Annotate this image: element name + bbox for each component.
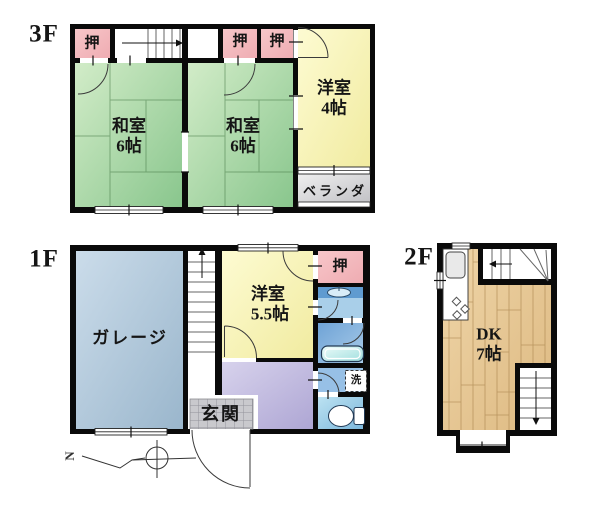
closet2-3f-label: 押 (232, 35, 247, 50)
floorplan-1f (70, 243, 370, 489)
genkan-label: 玄関 (201, 405, 241, 423)
floorplan-page: 3F 押 押 押 和室 6帖 和室 6帖 洋室 4帖 ベランダ 1F ガレージ … (0, 0, 600, 510)
compass-north-icon (82, 440, 196, 478)
understair-area (188, 362, 215, 395)
hall-3f (188, 29, 218, 58)
closet1-3f-label: 押 (84, 37, 99, 52)
floor-label-2f: 2F (404, 245, 434, 270)
floorplan-drawing (0, 0, 600, 510)
washitsu-left-size: 6帖 (116, 138, 142, 155)
yoshitsu-3f-size: 4帖 (321, 100, 347, 117)
closet3-3f-label: 押 (269, 35, 284, 50)
garage-label: ガレージ (92, 330, 168, 347)
dk-name: DK (476, 326, 502, 343)
closet-1f-label: 押 (332, 260, 347, 275)
yoshitsu-1f-name: 洋室 (251, 286, 285, 303)
washitsu-right-name: 和室 (226, 118, 260, 135)
laundry-label: 洗 (351, 376, 362, 387)
veranda-railing (298, 202, 370, 207)
toilet-icon (329, 406, 365, 427)
washitsu-left-name: 和室 (112, 118, 146, 135)
entry-door-arc (192, 430, 250, 488)
yoshitsu-3f-name: 洋室 (317, 80, 351, 97)
stairs-up-2f (478, 249, 551, 285)
bay-window (456, 430, 510, 453)
stairs-down-2f (515, 363, 551, 436)
veranda-label: ベランダ (303, 185, 367, 198)
kitchen-counter (443, 249, 469, 320)
washitsu-right-size: 6帖 (230, 138, 256, 155)
dk-size: 7帖 (476, 346, 502, 363)
north-label: N (62, 451, 78, 460)
floor-label-1f: 1F (29, 247, 59, 272)
floor-label-3f: 3F (29, 22, 59, 47)
kitchen-sink-icon (446, 252, 465, 278)
yoshitsu-1f-size: 5.5帖 (251, 306, 289, 323)
bathtub-icon (322, 346, 364, 362)
